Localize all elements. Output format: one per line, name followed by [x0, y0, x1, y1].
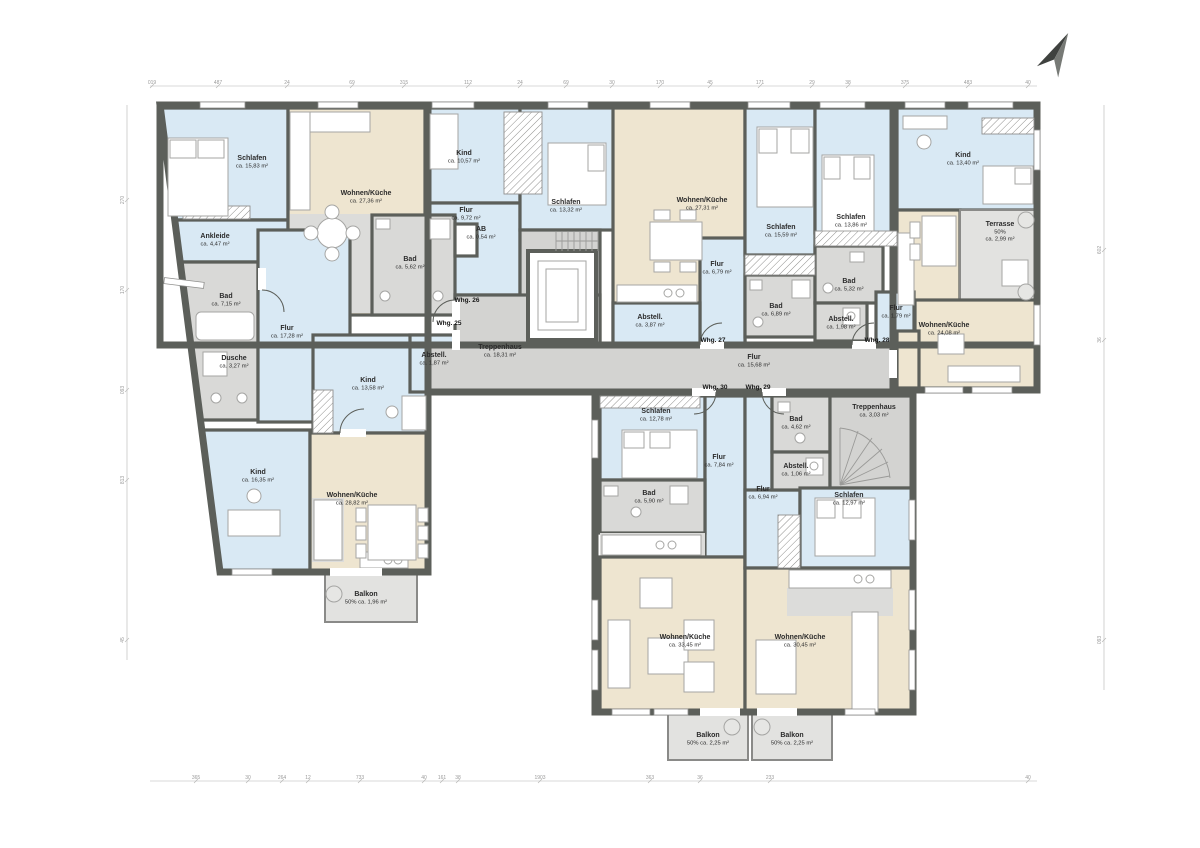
- room-label-schlafen26-name: Schlafen: [551, 199, 580, 206]
- dimension-value: 170: [656, 80, 665, 86]
- room-label-wk28-name: Wohnen/Küche: [919, 322, 970, 329]
- dimension-value: 30: [609, 80, 615, 86]
- room-label-flur28-area: ca. 1,79 m²: [882, 314, 911, 320]
- bed: [983, 166, 1033, 204]
- north-arrow-icon: [1037, 27, 1079, 77]
- room-label-flur30-name: Flur: [712, 454, 725, 461]
- room-label-bad29-name: Bad: [789, 416, 802, 423]
- room-label-bad27-name: Bad: [769, 303, 782, 310]
- dimension-value: 363: [646, 775, 655, 781]
- room-label-flur27-name: Flur: [710, 261, 723, 268]
- room-label-balkon30-name: Balkon: [696, 732, 719, 739]
- dimension-value: 483: [964, 80, 973, 86]
- dimension-value: 1903: [534, 775, 545, 781]
- room-label-wk25-name: Wohnen/Küche: [341, 190, 392, 197]
- room-bad-28: [815, 246, 883, 303]
- dimension-value: 733: [356, 775, 365, 781]
- room-label-balkon29-area: 50% ca. 2,25 m²: [771, 741, 813, 747]
- bed: [815, 498, 875, 556]
- dimension-value: 24: [517, 80, 523, 86]
- kitchen: [617, 285, 697, 302]
- dimension-value: 36: [697, 775, 703, 781]
- room-label-wk29-area: ca. 30,45 m²: [784, 643, 816, 649]
- room-label-abstell27-area: ca. 3,87 m²: [636, 323, 665, 329]
- bed: [757, 127, 813, 207]
- room-label-abstell25-name: Abstell.: [421, 352, 446, 359]
- dimension-value: 602: [1097, 246, 1103, 255]
- unit-label-whg28: Whg. 28: [865, 337, 890, 344]
- room-label-treppenhaus-name: Treppenhaus: [478, 344, 522, 351]
- room-label-wk30-name: Wohnen/Küche: [660, 634, 711, 641]
- room-label-kind28-name: Kind: [955, 152, 971, 159]
- room-label-treppenhaus29-name: Treppenhaus: [852, 404, 896, 411]
- floor-plan-canvas: Schlafenca. 15,83 m²Wohnen/Kücheca. 27,3…: [0, 0, 1200, 848]
- room-label-schlafen30-area: ca. 12,78 m²: [640, 417, 672, 423]
- dimension-value: 40: [1025, 80, 1031, 86]
- room-label-balkon25-name: Balkon: [354, 591, 377, 598]
- dimension-value: 233: [766, 775, 775, 781]
- room-label-kind25b-area: ca. 16,35 m²: [242, 478, 274, 484]
- room-label-bad27-area: ca. 6,89 m²: [762, 312, 791, 318]
- room-label-kind25a-area: ca. 13,58 m²: [352, 386, 384, 392]
- dimension-value: 40: [421, 775, 427, 781]
- dimension-value: 38: [845, 80, 851, 86]
- dimension-value: 170: [120, 286, 126, 295]
- bed: [168, 138, 228, 216]
- room-label-abstell27-name: Abstell.: [637, 314, 662, 321]
- dimension-value: 813: [120, 476, 126, 485]
- room-label-wk25b-area: ca. 28,82 m²: [336, 501, 368, 507]
- dimension-value: 093: [1097, 636, 1103, 645]
- room-label-schlafen25-area: ca. 15,83 m²: [236, 164, 268, 170]
- room-label-ab26-name: AB: [476, 226, 486, 233]
- room-label-schlafen27-name: Schlafen: [766, 224, 795, 231]
- bed: [548, 143, 606, 205]
- room-label-wk27-name: Wohnen/Küche: [677, 197, 728, 204]
- room-label-wk27-area: ca. 27,31 m²: [686, 206, 718, 212]
- room-label-balkon25-area: 50% ca. 1,96 m²: [345, 600, 387, 606]
- room-label-dusche25-area: ca. 3,27 m²: [220, 364, 249, 370]
- room-label-bad30-area: ca. 5,90 m²: [635, 499, 664, 505]
- room-label-wk25-area: ca. 27,36 m²: [350, 199, 382, 205]
- room-label-ankleide25-name: Ankleide: [200, 233, 229, 240]
- room-label-schlafen28-name: Schlafen: [836, 214, 865, 221]
- room-label-bad28-area: ca. 5,32 m²: [835, 287, 864, 293]
- room-label-bad28-name: Bad: [842, 278, 855, 285]
- room-label-kind26-name: Kind: [456, 150, 472, 157]
- dimension-value: 12: [305, 775, 311, 781]
- dimension-value: 69: [349, 80, 355, 86]
- dimension-value: 487: [214, 80, 223, 86]
- room-flur-30: [705, 396, 745, 557]
- room-label-flur27-area: ca. 6,79 m²: [703, 270, 732, 276]
- room-label-bad29-area: ca. 4,62 m²: [782, 425, 811, 431]
- room-label-balkon29-name: Balkon: [780, 732, 803, 739]
- room-label-ab26-area: ca. 0,54 m²: [467, 235, 496, 241]
- room-label-flur26-name: Flur: [459, 207, 472, 214]
- floor-plan-svg: Schlafenca. 15,83 m²Wohnen/Kücheca. 27,3…: [0, 0, 1200, 848]
- room-label-schlafen29-area: ca. 12,97 m²: [833, 501, 865, 507]
- room-label-schlafen28-area: ca. 13,86 m²: [835, 223, 867, 229]
- dimension-value: 112: [464, 80, 472, 86]
- dimension-value: 24: [284, 80, 290, 86]
- room-label-abstell29-name: Abstell.: [783, 463, 808, 470]
- dimension-value: 38: [455, 775, 461, 781]
- room-label-treppenhaus-area: ca. 18,31 m²: [484, 353, 516, 359]
- bathtub: [196, 312, 254, 340]
- room-label-kind26-area: ca. 10,57 m²: [448, 159, 480, 165]
- room-label-abstell25-area: ca. 1,87 m²: [420, 361, 449, 367]
- room-label-wk28-area: ca. 24,08 m²: [928, 331, 960, 337]
- room-label-balkon30-area: 50% ca. 2,25 m²: [687, 741, 729, 747]
- dimension-value: 161: [438, 775, 447, 781]
- room-label-abstell28-name: Abstell.: [828, 316, 853, 323]
- dimension-value: 45: [707, 80, 713, 86]
- kitchen: [602, 535, 701, 555]
- dimension-value: 30: [245, 775, 251, 781]
- room-label-flur29-name: Flur: [756, 486, 769, 493]
- room-label-dusche25-name: Dusche: [221, 355, 246, 362]
- room-label-flur29-area: ca. 6,94 m²: [749, 495, 778, 501]
- dimension-value: 375: [901, 80, 910, 86]
- room-label-terrasse28-name: Terrasse: [986, 221, 1015, 228]
- room-label-bad30-name: Bad: [642, 490, 655, 497]
- room-label-terrasse28-area: 50%: [994, 230, 1006, 236]
- room-label-schlafen25-name: Schlafen: [237, 155, 266, 162]
- dimension-value: 36: [1097, 337, 1103, 343]
- room-label-kind25a-name: Kind: [360, 377, 376, 384]
- room-label-wk25b-name: Wohnen/Küche: [327, 492, 378, 499]
- dimension-value: 264: [278, 775, 287, 781]
- dimension-value: 69: [563, 80, 569, 86]
- room-label-schlafen30-name: Schlafen: [641, 408, 670, 415]
- room-label-flurC-area: ca. 15,68 m²: [738, 363, 770, 369]
- room-label-flur26-area: ca. 9,72 m²: [452, 216, 481, 222]
- room-label-flur25-area: ca. 17,28 m²: [271, 334, 303, 340]
- room-label-bad25-area: ca. 7,15 m²: [212, 302, 241, 308]
- kitchen: [789, 570, 891, 588]
- room-label-kind28-area: ca. 13,40 m²: [947, 161, 979, 167]
- unit-label-whg26: Whg. 26: [455, 297, 480, 304]
- room-label-schlafen26-area: ca. 13,32 m²: [550, 208, 582, 214]
- room-label-schlafen27-area: ca. 15,59 m²: [765, 233, 797, 239]
- room-label-treppenhaus29-area: ca. 3,03 m²: [860, 413, 889, 419]
- dimension-value: 45: [120, 637, 126, 643]
- dimension-value: 40: [1025, 775, 1031, 781]
- unit-label-whg27: Whg. 27: [701, 337, 726, 344]
- room-label-abstell28-area: ca. 1,98 m²: [827, 325, 856, 331]
- room-label-ankleide25-area: ca. 4,47 m²: [201, 242, 230, 248]
- room-label-flur25-name: Flur: [280, 325, 293, 332]
- dimension-value: 093: [120, 386, 126, 395]
- unit-label-whg29: Whg. 29: [746, 384, 771, 391]
- room-label-wk29-name: Wohnen/Küche: [775, 634, 826, 641]
- unit-label-whg25: Whg. 25: [437, 320, 462, 327]
- bed: [622, 430, 697, 478]
- room-label-bad25-name: Bad: [219, 293, 232, 300]
- dimension-value: 29: [809, 80, 815, 86]
- room-label-bad26-name: Bad: [403, 256, 416, 263]
- room-label-terrasse28-area2: ca. 2,99 m²: [986, 237, 1015, 243]
- room-label-kind25b-name: Kind: [250, 469, 266, 476]
- dimension-value: 019: [148, 80, 157, 86]
- unit-label-whg30: Whg. 30: [703, 384, 728, 391]
- elevator: [528, 251, 596, 340]
- dimension-value: 270: [120, 196, 126, 205]
- dimension-value: 171: [756, 80, 765, 86]
- dimension-value: 365: [192, 775, 201, 781]
- room-label-bad26-area: ca. 5,62 m²: [396, 265, 425, 271]
- room-label-flurC-name: Flur: [747, 354, 760, 361]
- room-label-flur28-name: Flur: [889, 305, 902, 312]
- room-label-wk30-area: ca. 33,45 m²: [669, 643, 701, 649]
- room-label-flur30-area: ca. 7,84 m²: [705, 463, 734, 469]
- room-label-schlafen29-name: Schlafen: [834, 492, 863, 499]
- room-label-abstell29-area: ca. 1,06 m²: [782, 472, 811, 478]
- dimension-value: 315: [400, 80, 409, 86]
